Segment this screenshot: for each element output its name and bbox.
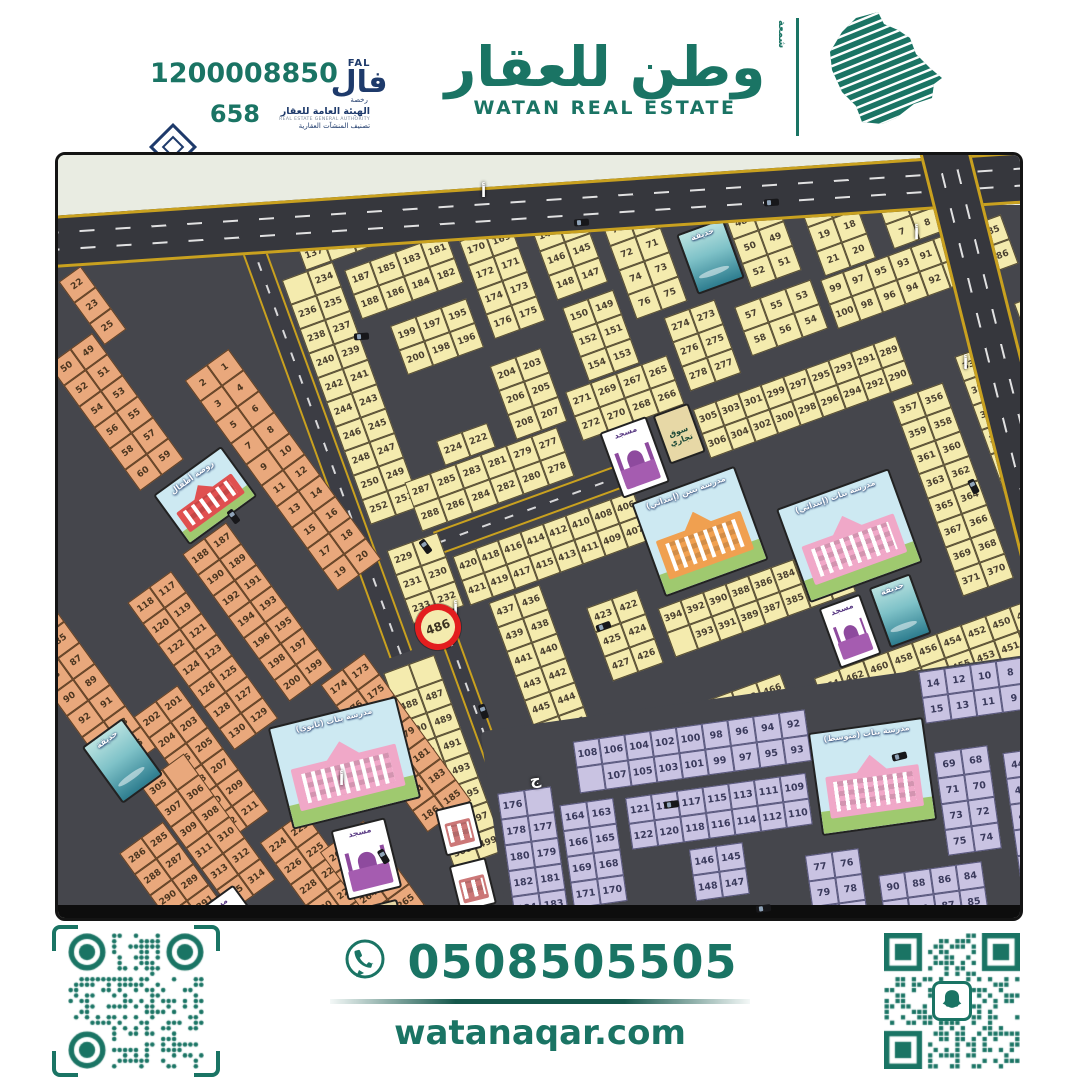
plot-115: 115 — [702, 784, 731, 813]
classification-number: 658 — [150, 100, 260, 128]
plot-70: 70 — [964, 771, 994, 801]
plot-96: 96 — [727, 717, 756, 746]
block-letter: أ — [914, 225, 919, 243]
plot-165: 165 — [590, 824, 620, 854]
plot-182: 182 — [508, 867, 538, 897]
plot-148: 148 — [693, 872, 723, 902]
plot-169: 169 — [567, 853, 597, 883]
brand-separator — [796, 18, 799, 136]
plot-121: 121 — [625, 795, 654, 824]
car — [574, 218, 589, 226]
plot-107: 107 — [602, 760, 631, 789]
plot-10: 10 — [970, 661, 999, 690]
plot-93: 93 — [782, 735, 811, 764]
plot-166: 166 — [563, 827, 593, 857]
plot-117: 117 — [677, 787, 706, 816]
plot-170: 170 — [597, 875, 627, 905]
block-letter: أ — [481, 183, 486, 201]
plot-181: 181 — [535, 864, 565, 894]
plot-164: 164 — [560, 802, 590, 832]
plot-94: 94 — [753, 713, 782, 742]
authority-text: الهيئة العامة للعقار REAL ESTATE GENERAL… — [279, 106, 370, 130]
plot-116: 116 — [706, 809, 735, 838]
plot-109: 109 — [780, 773, 809, 802]
plot-177: 177 — [528, 812, 558, 842]
phone-number[interactable]: 0508505505 — [408, 935, 738, 989]
plot — [524, 786, 554, 816]
plot-168: 168 — [594, 849, 624, 879]
brand: وطن للعقار WATAN REAL ESTATE — [430, 40, 780, 119]
plot-104: 104 — [624, 731, 653, 760]
plot-122: 122 — [629, 820, 658, 849]
plot-97: 97 — [731, 742, 760, 771]
plot-98: 98 — [702, 720, 731, 749]
plot-111: 111 — [754, 776, 783, 805]
plot-110: 110 — [783, 799, 812, 828]
plot-90: 90 — [878, 872, 907, 901]
plot-176: 176 — [497, 790, 527, 820]
plot-map: 1361341321301371351331311871851831811881… — [55, 152, 1023, 921]
header: 1200008850 FAL فال رخصة 658 الهيئة العام… — [0, 0, 1080, 152]
plot-178: 178 — [501, 816, 531, 846]
plot-113: 113 — [728, 780, 757, 809]
website[interactable]: watanaqar.com — [0, 1013, 1080, 1053]
plot-9: 9 — [999, 683, 1023, 712]
plot-13: 13 — [948, 691, 977, 720]
plot-14: 14 — [918, 669, 947, 698]
plot-101: 101 — [679, 750, 708, 779]
plot-105: 105 — [628, 757, 657, 786]
plot-69: 69 — [934, 749, 964, 779]
plot-163: 163 — [586, 798, 616, 828]
plot-block: 504952515453565558576059 — [55, 333, 184, 491]
brand-side-word: شمعة — [776, 20, 787, 136]
plot-379: 379 — [1021, 747, 1023, 781]
plot-102: 102 — [650, 727, 679, 756]
plot-6: 6 — [1021, 654, 1023, 683]
plot-92: 92 — [779, 709, 808, 738]
block-letter: أ — [339, 771, 344, 789]
plot-12: 12 — [944, 665, 973, 694]
plot-100: 100 — [676, 724, 705, 753]
car — [764, 198, 779, 206]
plot-46: 46 — [1006, 775, 1023, 805]
plot-180: 180 — [505, 842, 535, 872]
plot-71: 71 — [937, 775, 967, 805]
block-letter: ج — [529, 770, 542, 789]
plot-108: 108 — [573, 738, 602, 767]
plot-76: 76 — [832, 848, 862, 878]
fal-logo: FAL فال رخصة — [320, 58, 398, 104]
plot-145: 145 — [716, 842, 746, 872]
plot-99: 99 — [705, 746, 734, 775]
plot-147: 147 — [719, 868, 749, 898]
plot-44: 44 — [1003, 749, 1023, 779]
facility-mosque: مسجد — [331, 817, 403, 900]
plot-118: 118 — [680, 813, 709, 842]
plot-block: 146145148147 — [689, 842, 750, 901]
plot-120: 120 — [655, 817, 684, 846]
plot-179: 179 — [531, 838, 561, 868]
brand-arabic: وطن للعقار — [430, 40, 780, 95]
car — [354, 332, 369, 340]
plot-372: 372 — [1020, 664, 1023, 698]
plot-88: 88 — [904, 868, 933, 897]
plot-68: 68 — [961, 745, 991, 775]
plot-72: 72 — [968, 797, 998, 827]
plot-146: 146 — [689, 846, 719, 876]
plot-8: 8 — [996, 658, 1023, 687]
plot-74: 74 — [971, 822, 1001, 852]
plot-84: 84 — [956, 861, 985, 890]
plot-114: 114 — [732, 806, 761, 835]
plot — [576, 764, 605, 793]
brand-english: WATAN REAL ESTATE — [430, 97, 780, 119]
plot-77: 77 — [805, 852, 835, 882]
plot-103: 103 — [654, 753, 683, 782]
fal-license-number: 1200008850 — [150, 58, 305, 89]
plot-95: 95 — [757, 739, 786, 768]
plot-73: 73 — [941, 801, 971, 831]
plot-11: 11 — [974, 687, 1003, 716]
poster: 1200008850 FAL فال رخصة 658 الهيئة العام… — [0, 0, 1080, 1080]
plot-15: 15 — [922, 694, 951, 723]
plot-106: 106 — [599, 735, 628, 764]
footer: 0508505505 watanaqar.com — [0, 921, 1080, 1080]
plot-112: 112 — [758, 802, 787, 831]
plot-54: 54 — [1021, 878, 1023, 908]
facility-mini — [435, 801, 483, 857]
plot-86: 86 — [930, 865, 959, 894]
plot-78: 78 — [835, 874, 865, 904]
plot-75: 75 — [945, 826, 975, 856]
saudi-map-icon — [812, 6, 962, 144]
whatsapp-icon[interactable] — [342, 937, 388, 987]
plot-171: 171 — [570, 879, 600, 909]
divider — [330, 999, 750, 1004]
fal-license: 1200008850 FAL فال رخصة — [150, 58, 410, 106]
block-letter: أ — [963, 355, 968, 373]
facility-school: مدرسة بنات (متوسط) — [808, 717, 937, 836]
plot-307: 307 — [1014, 294, 1023, 328]
plot-79: 79 — [809, 878, 839, 908]
